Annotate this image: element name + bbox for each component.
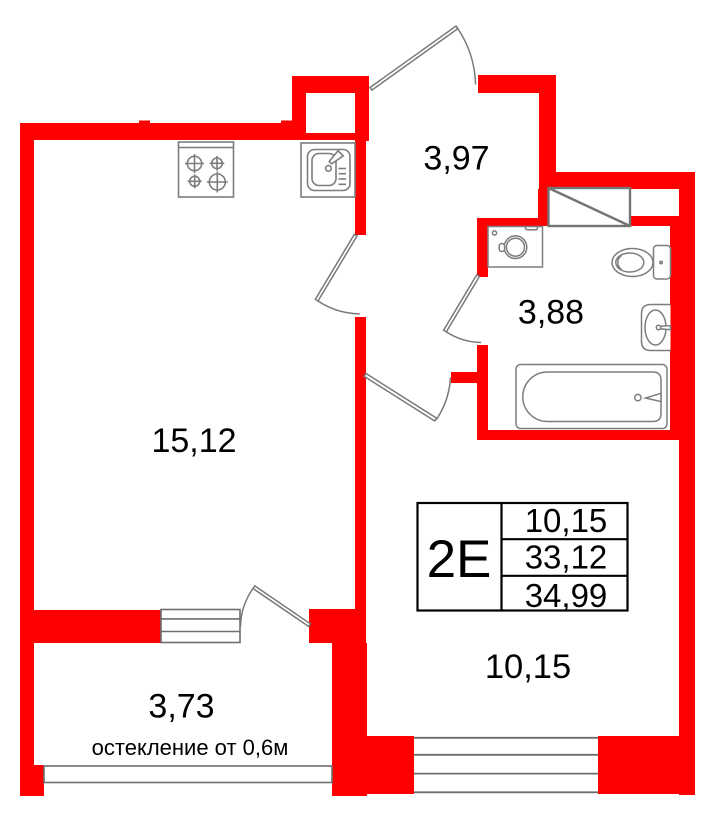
svg-text:15,12: 15,12 bbox=[151, 422, 236, 460]
svg-text:34,99: 34,99 bbox=[525, 577, 608, 614]
svg-text:3,88: 3,88 bbox=[518, 294, 584, 332]
svg-text:3,73: 3,73 bbox=[148, 688, 214, 726]
svg-text:10,15: 10,15 bbox=[525, 502, 608, 539]
svg-text:остекление от 0,6м: остекление от 0,6м bbox=[92, 735, 289, 760]
svg-text:10,15: 10,15 bbox=[485, 648, 571, 686]
svg-text:2Е: 2Е bbox=[427, 530, 492, 589]
svg-text:3,97: 3,97 bbox=[423, 140, 489, 178]
svg-text:33,12: 33,12 bbox=[525, 539, 608, 576]
